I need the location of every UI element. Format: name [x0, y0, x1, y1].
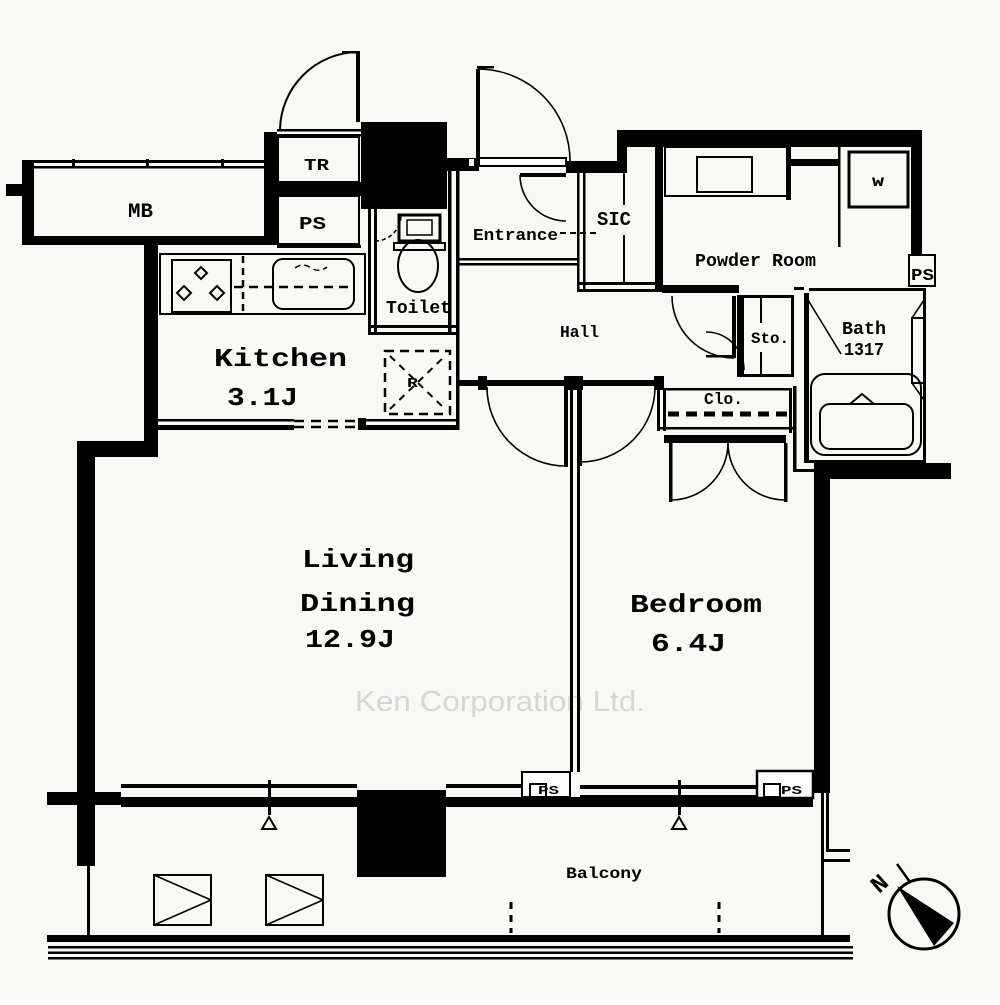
svg-text:Hall: Hall — [560, 324, 599, 343]
svg-text:6.4J: 6.4J — [651, 629, 726, 659]
svg-text:W: W — [872, 175, 884, 190]
svg-text:1317: 1317 — [844, 341, 884, 361]
svg-text:Living: Living — [302, 545, 414, 575]
svg-text:Ken Corporation Ltd.: Ken Corporation Ltd. — [355, 686, 645, 718]
svg-text:Kitchen: Kitchen — [214, 344, 347, 374]
svg-text:Bedroom: Bedroom — [630, 590, 762, 620]
svg-text:TR: TR — [304, 157, 330, 176]
svg-text:PS: PS — [538, 784, 559, 798]
svg-text:PS: PS — [299, 215, 326, 235]
svg-text:Toilet: Toilet — [386, 299, 451, 319]
svg-text:PS: PS — [781, 784, 802, 798]
svg-text:Sto.: Sto. — [751, 330, 789, 348]
svg-text:MB: MB — [128, 201, 153, 224]
svg-text:3.1J: 3.1J — [227, 383, 298, 413]
svg-text:Balcony: Balcony — [566, 865, 642, 883]
svg-text:Bath: Bath — [842, 320, 886, 340]
svg-text:SIC: SIC — [597, 209, 631, 231]
svg-text:Clo.: Clo. — [704, 391, 743, 410]
svg-text:Dining: Dining — [300, 589, 415, 619]
svg-text:12.9J: 12.9J — [305, 625, 395, 655]
svg-text:Entrance: Entrance — [473, 227, 558, 246]
svg-text:PS: PS — [911, 267, 934, 286]
svg-text:R: R — [407, 376, 419, 392]
svg-text:Powder Room: Powder Room — [695, 252, 816, 272]
